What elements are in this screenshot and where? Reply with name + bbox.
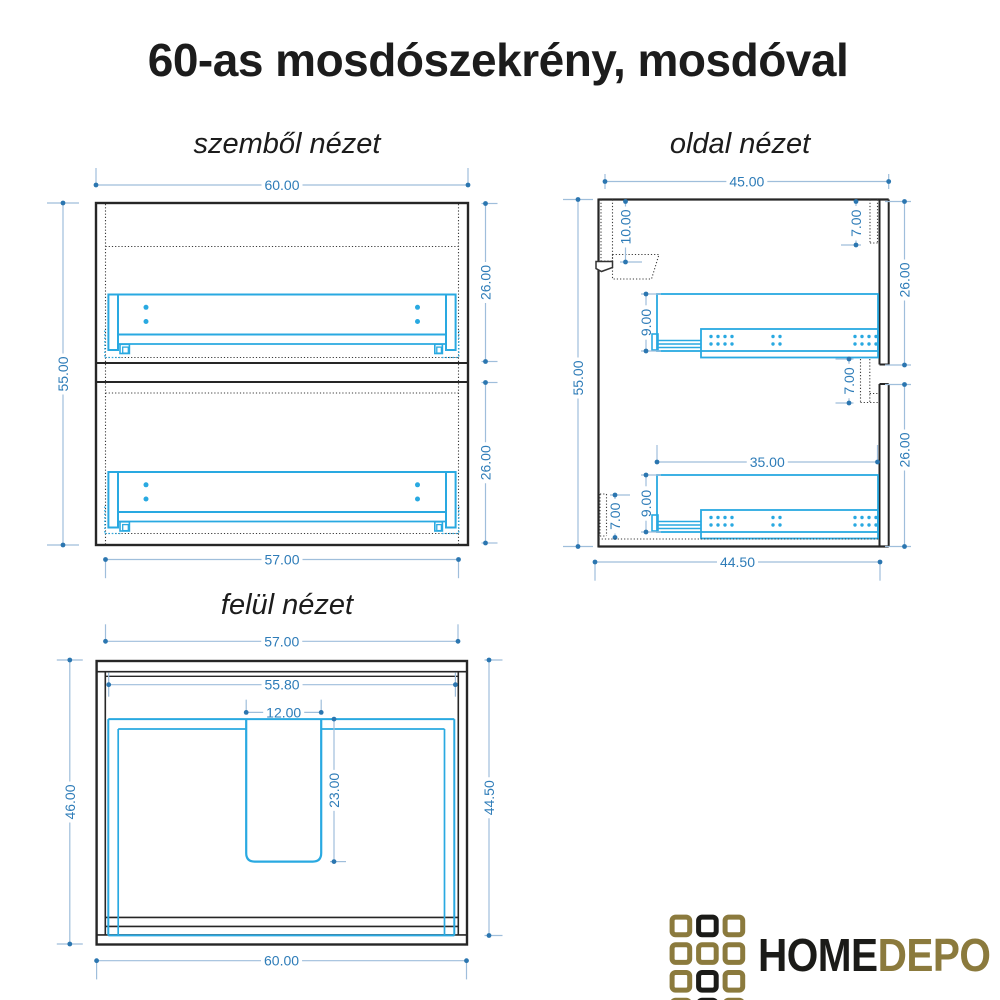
svg-text:26.00: 26.00 xyxy=(478,445,494,480)
svg-text:26.00: 26.00 xyxy=(478,265,494,300)
svg-text:35.00: 35.00 xyxy=(750,454,785,470)
svg-text:szemből nézet: szemből nézet xyxy=(194,128,383,160)
svg-text:55.00: 55.00 xyxy=(570,360,586,395)
svg-text:55.80: 55.80 xyxy=(265,677,300,693)
svg-text:26.00: 26.00 xyxy=(897,432,913,467)
svg-text:44.50: 44.50 xyxy=(720,554,755,570)
svg-text:57.00: 57.00 xyxy=(264,633,299,649)
svg-text:HOMEDEPO: HOMEDEPO xyxy=(758,931,990,982)
svg-text:60.00: 60.00 xyxy=(264,953,299,969)
svg-text:9.00: 9.00 xyxy=(638,309,654,336)
svg-text:felül nézet: felül nézet xyxy=(221,589,355,621)
svg-text:44.50: 44.50 xyxy=(481,780,497,815)
svg-text:55.00: 55.00 xyxy=(55,356,71,391)
svg-text:10.00: 10.00 xyxy=(618,209,634,244)
svg-text:57.00: 57.00 xyxy=(264,552,299,568)
svg-text:9.00: 9.00 xyxy=(638,490,654,517)
svg-text:7.00: 7.00 xyxy=(841,367,857,394)
svg-text:7.00: 7.00 xyxy=(848,209,864,236)
svg-text:26.00: 26.00 xyxy=(897,262,913,297)
svg-text:oldal nézet: oldal nézet xyxy=(670,128,812,160)
svg-text:46.00: 46.00 xyxy=(62,784,78,819)
svg-text:7.00: 7.00 xyxy=(607,502,623,529)
svg-text:45.00: 45.00 xyxy=(729,174,764,190)
svg-text:60.00: 60.00 xyxy=(264,177,299,193)
svg-text:23.00: 23.00 xyxy=(326,773,342,808)
svg-text:12.00: 12.00 xyxy=(266,704,301,720)
svg-text:60-as mosdószekrény, mosdóval: 60-as mosdószekrény, mosdóval xyxy=(148,34,849,86)
